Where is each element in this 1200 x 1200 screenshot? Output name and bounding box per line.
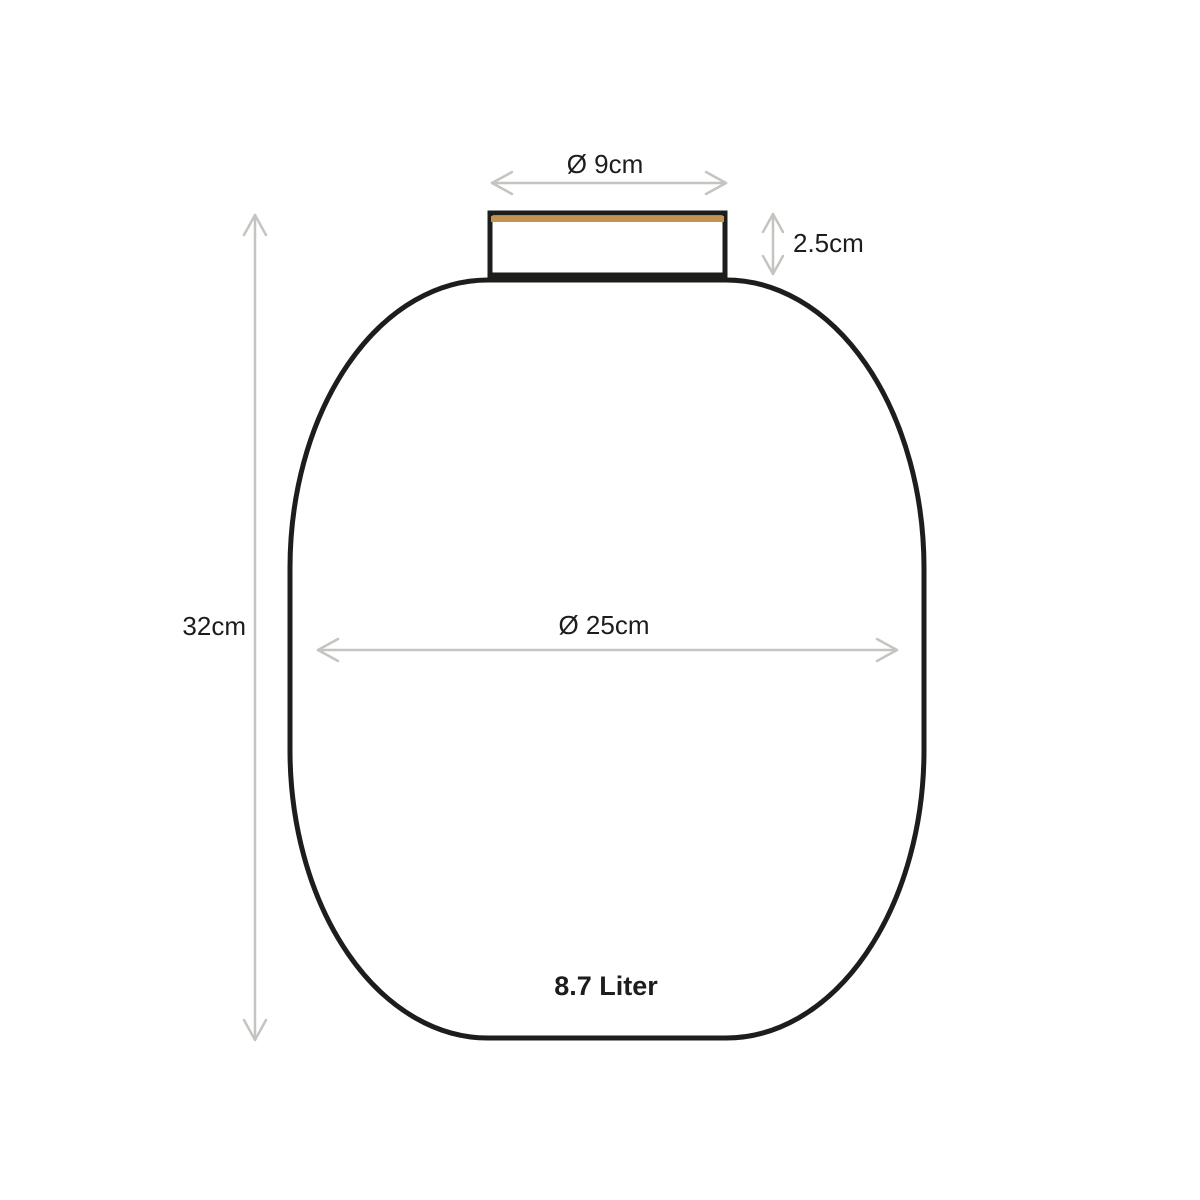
volume-label: 8.7 Liter <box>506 972 706 1002</box>
neck-height-label: 2.5cm <box>793 229 864 258</box>
vase-neck-outline <box>490 213 725 275</box>
diagram-drawing <box>0 0 1200 1200</box>
total-height-label: 32cm <box>150 612 246 641</box>
neck-height-arrow <box>763 214 783 274</box>
opening-diameter-label: Ø 9cm <box>505 150 705 179</box>
dimension-diagram: Ø 9cm 2.5cm 32cm Ø 25cm 8.7 Liter <box>0 0 1200 1200</box>
vase-body-outline <box>290 280 924 1038</box>
total-height-arrow <box>244 215 266 1040</box>
body-diameter-label: Ø 25cm <box>504 611 704 640</box>
